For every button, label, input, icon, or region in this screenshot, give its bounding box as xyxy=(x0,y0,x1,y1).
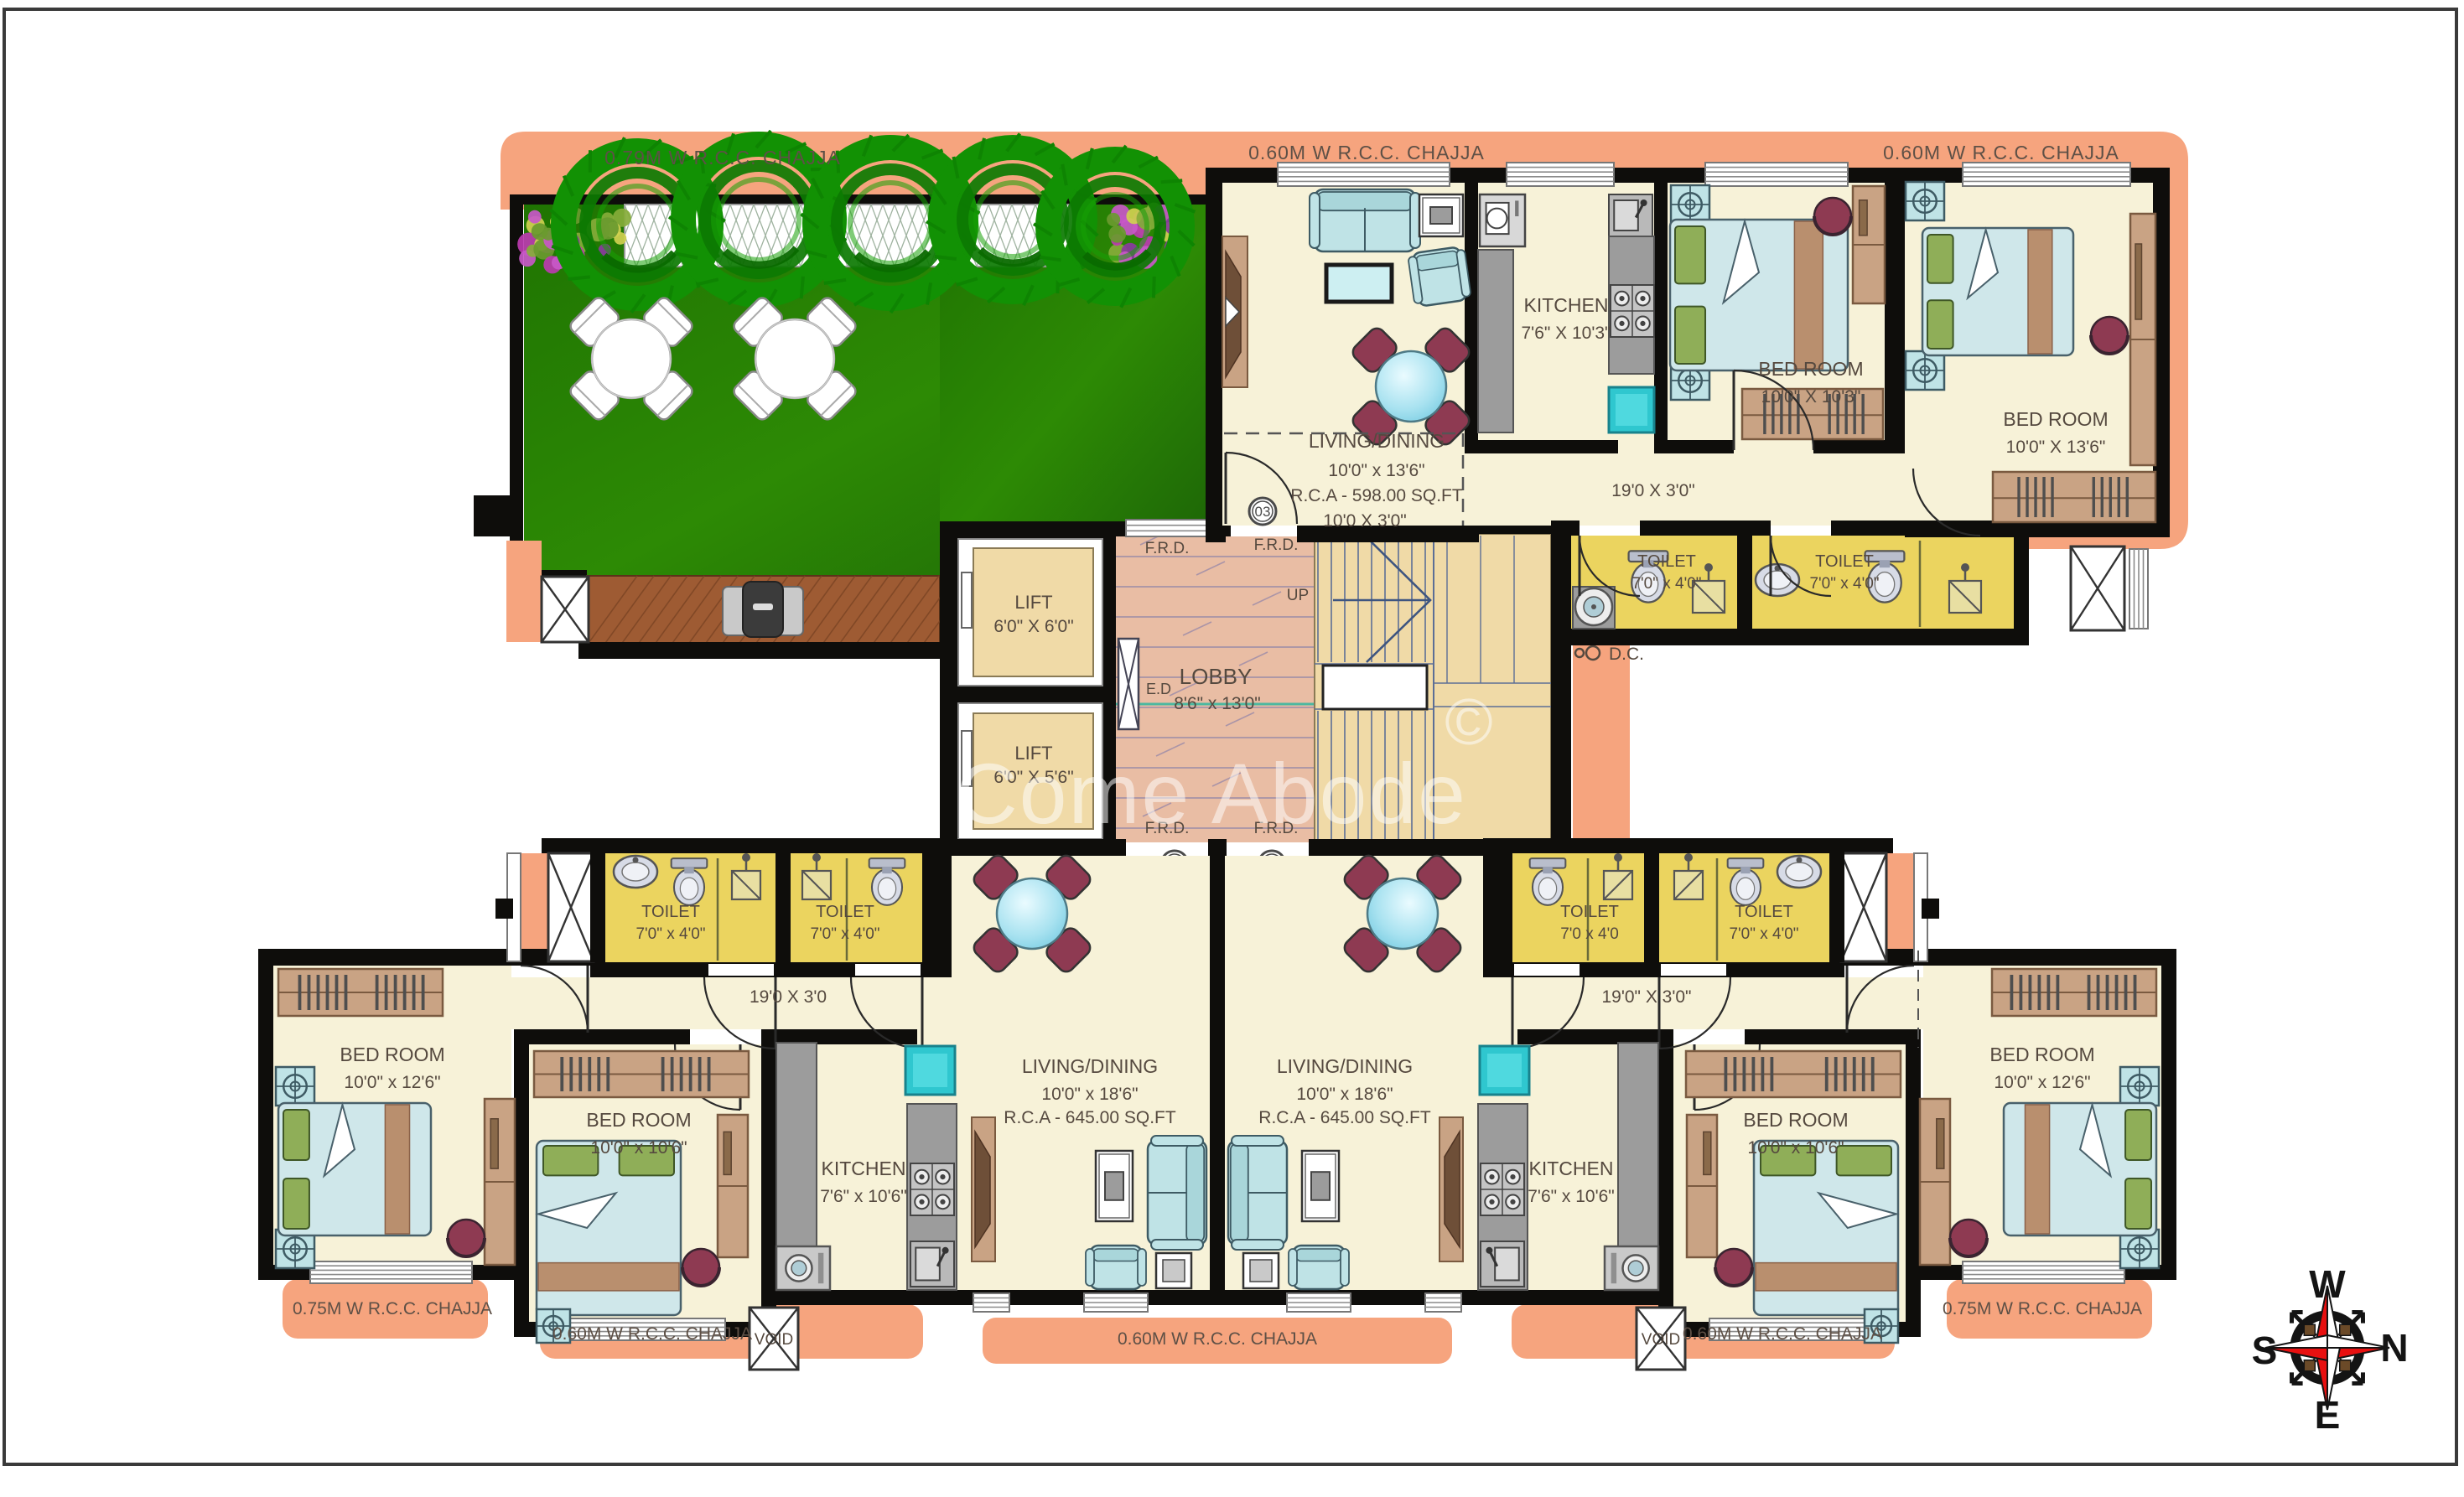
svg-text:TOILET: TOILET xyxy=(1560,903,1619,921)
svg-text:7'0 x 4'0: 7'0 x 4'0 xyxy=(1560,925,1619,943)
svg-text:0.60M W R.C.C. CHAJJA: 0.60M W R.C.C. CHAJJA xyxy=(1883,142,2119,163)
svg-text:D.C.: D.C. xyxy=(1609,645,1644,664)
svg-text:10'0" x 10'6": 10'0" x 10'6" xyxy=(1747,1138,1844,1158)
svg-text:VOID: VOID xyxy=(755,1331,793,1349)
svg-text:03: 03 xyxy=(1255,504,1271,520)
svg-text:7'0" x 4'0": 7'0" x 4'0" xyxy=(1729,925,1798,943)
svg-text:KITCHEN: KITCHEN xyxy=(1524,294,1609,316)
svg-text:TOILET: TOILET xyxy=(1815,552,1874,571)
svg-text:N: N xyxy=(2380,1326,2408,1370)
svg-text:F.R.D.: F.R.D. xyxy=(1145,540,1190,557)
svg-text:VOID: VOID xyxy=(1642,1331,1680,1349)
svg-text:7'0" x 4'0": 7'0" x 4'0" xyxy=(810,925,879,943)
svg-text:10'0" x 18'6": 10'0" x 18'6" xyxy=(1296,1085,1393,1104)
svg-text:19'0 X 3'0: 19'0 X 3'0 xyxy=(750,987,827,1007)
svg-text:F.R.D.: F.R.D. xyxy=(1254,536,1299,554)
svg-text:BED ROOM: BED ROOM xyxy=(1989,1044,2094,1065)
svg-text:S: S xyxy=(2252,1329,2278,1372)
svg-text:10'0" X 10'3": 10'0" X 10'3" xyxy=(1761,387,1861,407)
svg-text:R.C.A - 598.00 SQ.FT: R.C.A - 598.00 SQ.FT xyxy=(1290,486,1463,505)
svg-text:10'0" x 12'6": 10'0" x 12'6" xyxy=(1994,1073,2090,1092)
svg-text:R.C.A - 645.00 SQ.FT: R.C.A - 645.00 SQ.FT xyxy=(1004,1108,1176,1127)
svg-text:LIVING/DINING: LIVING/DINING xyxy=(1309,430,1445,452)
svg-text:E: E xyxy=(2315,1393,2341,1437)
svg-text:0.75M W R.C.C. CHAJJA: 0.75M W R.C.C. CHAJJA xyxy=(293,1299,492,1318)
svg-text:LIFT: LIFT xyxy=(1014,592,1052,613)
svg-text:19'0" X 3'0": 19'0" X 3'0" xyxy=(1602,987,1692,1007)
svg-text:10'0" x 12'6": 10'0" x 12'6" xyxy=(344,1073,440,1092)
svg-text:LIVING/DINING: LIVING/DINING xyxy=(1022,1055,1158,1077)
svg-text:8'6" x 13'0": 8'6" x 13'0" xyxy=(1174,694,1261,713)
svg-text:7'6" x 10'6": 7'6" x 10'6" xyxy=(1528,1187,1615,1206)
svg-text:7'0" x 4'0": 7'0" x 4'0" xyxy=(1631,575,1701,593)
svg-text:7'6" X 10'3": 7'6" X 10'3" xyxy=(1522,324,1611,343)
svg-text:TOILET: TOILET xyxy=(641,903,700,921)
svg-text:19'0 X 3'0": 19'0 X 3'0" xyxy=(1611,481,1695,500)
svg-text:0.60M W R.C.C. CHAJJA: 0.60M W R.C.C. CHAJJA xyxy=(1118,1329,1317,1349)
svg-text:E.D: E.D xyxy=(1146,681,1171,697)
svg-text:7'0" x 4'0": 7'0" x 4'0" xyxy=(635,925,705,943)
svg-text:10'0" x 18'6": 10'0" x 18'6" xyxy=(1041,1085,1138,1104)
svg-text:BED ROOM: BED ROOM xyxy=(2003,408,2108,430)
svg-text:10'0 X 3'0": 10'0 X 3'0" xyxy=(1323,511,1407,531)
svg-text:0.60M W R.C.C. CHAJJA: 0.60M W R.C.C. CHAJJA xyxy=(1248,142,1485,163)
svg-text:R.C.A - 645.00 SQ.FT: R.C.A - 645.00 SQ.FT xyxy=(1258,1108,1431,1127)
svg-text:0.60M W R.C.C. CHAJJA: 0.60M W R.C.C. CHAJJA xyxy=(1683,1324,1882,1344)
svg-text:Come Abode: Come Abode xyxy=(956,746,1467,842)
svg-text:0.75M W R.C.C. CHAJJA: 0.75M W R.C.C. CHAJJA xyxy=(1943,1299,2142,1318)
svg-text:LOBBY: LOBBY xyxy=(1180,664,1253,689)
svg-text:0.60M W R.C.C. CHAJJA: 0.60M W R.C.C. CHAJJA xyxy=(552,1324,752,1344)
svg-text:TOILET: TOILET xyxy=(1735,903,1793,921)
svg-text:10'0" x 13'6": 10'0" x 13'6" xyxy=(1328,461,1424,480)
svg-text:©: © xyxy=(1445,685,1492,759)
svg-text:7'0" x 4'0": 7'0" x 4'0" xyxy=(1809,575,1879,593)
svg-text:KITCHEN: KITCHEN xyxy=(822,1158,906,1179)
svg-text:10'0" X 13'6": 10'0" X 13'6" xyxy=(2006,438,2106,457)
svg-text:0.79M W R.C.C. CHAJJA: 0.79M W R.C.C. CHAJJA xyxy=(604,147,841,168)
svg-text:7'6" x 10'6": 7'6" x 10'6" xyxy=(820,1187,907,1206)
svg-text:BED ROOM: BED ROOM xyxy=(340,1044,444,1065)
svg-text:BED ROOM: BED ROOM xyxy=(1758,358,1863,380)
svg-text:BED ROOM: BED ROOM xyxy=(1743,1109,1848,1131)
svg-text:UP: UP xyxy=(1287,587,1309,604)
svg-text:10'0" x 10'6": 10'0" x 10'6" xyxy=(590,1138,687,1158)
svg-text:6'0" X 6'0": 6'0" X 6'0" xyxy=(993,617,1073,636)
svg-text:TOILET: TOILET xyxy=(1637,552,1696,571)
svg-text:BED ROOM: BED ROOM xyxy=(586,1109,691,1131)
svg-text:TOILET: TOILET xyxy=(816,903,874,921)
svg-text:KITCHEN: KITCHEN xyxy=(1529,1158,1614,1179)
svg-text:W: W xyxy=(2309,1262,2346,1306)
svg-text:LIVING/DINING: LIVING/DINING xyxy=(1277,1055,1413,1077)
